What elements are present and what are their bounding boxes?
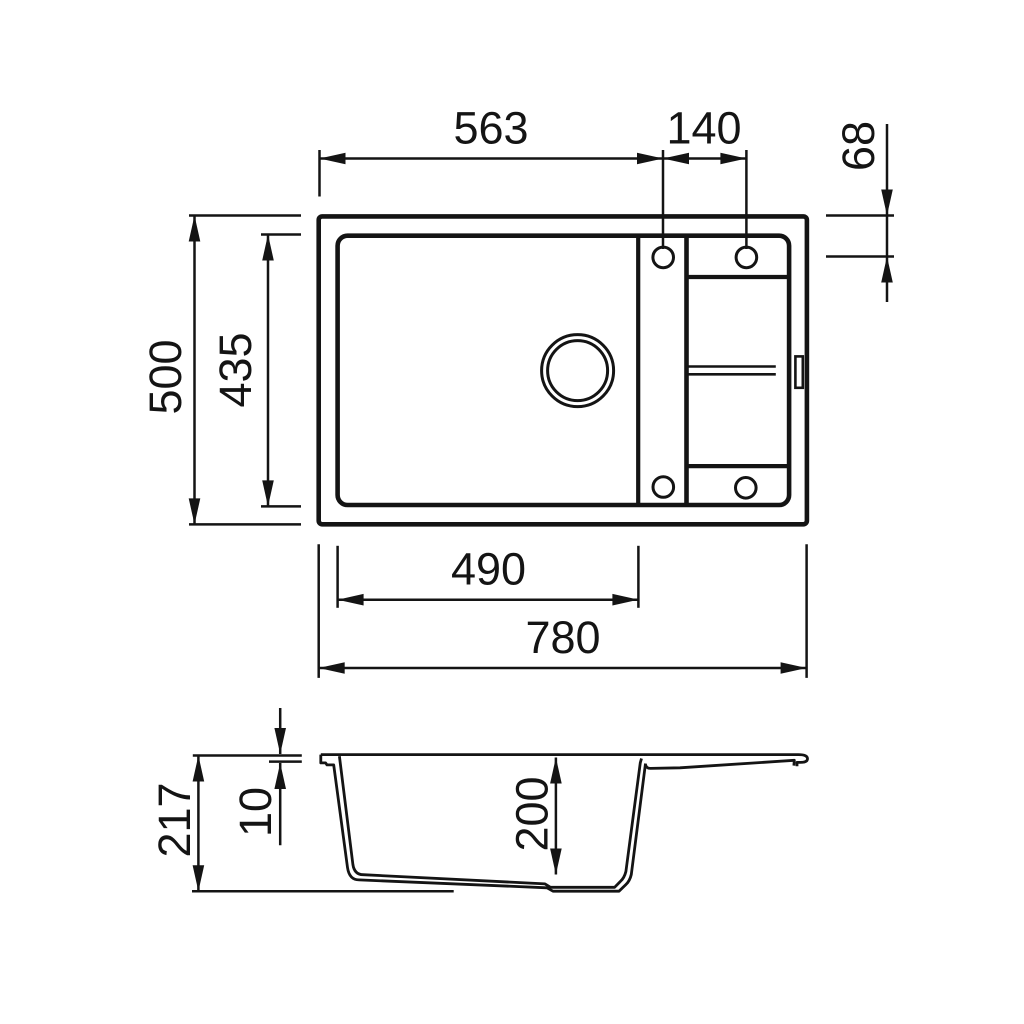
svg-text:200: 200: [507, 776, 558, 851]
svg-text:10: 10: [230, 787, 281, 837]
svg-text:217: 217: [149, 782, 200, 857]
svg-text:500: 500: [140, 339, 191, 414]
svg-text:68: 68: [833, 121, 884, 171]
svg-text:140: 140: [666, 103, 741, 154]
svg-text:563: 563: [453, 103, 528, 154]
svg-text:490: 490: [451, 544, 526, 595]
svg-text:435: 435: [210, 332, 261, 407]
svg-text:780: 780: [525, 612, 600, 663]
